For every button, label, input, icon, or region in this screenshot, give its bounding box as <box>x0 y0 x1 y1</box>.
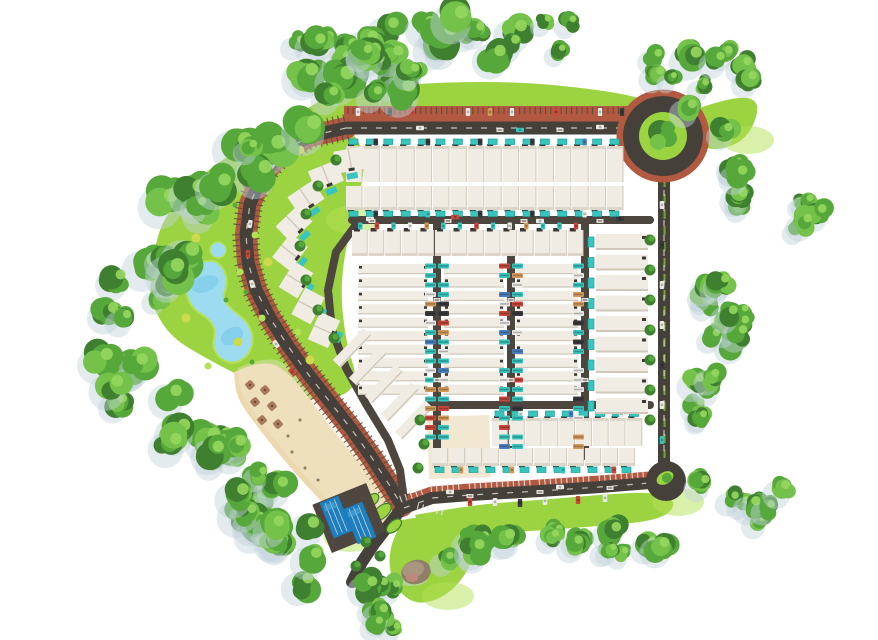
villa-unit <box>468 230 483 256</box>
villa-unit <box>607 146 623 182</box>
rowhouse-slab <box>444 318 504 328</box>
bush <box>237 269 244 276</box>
villa-unit <box>596 234 648 250</box>
plunge-pool <box>435 467 444 473</box>
rowhouse-slab <box>516 331 578 341</box>
plunge-pool <box>588 467 597 473</box>
villa-unit <box>485 230 500 256</box>
villa-unit <box>520 146 536 182</box>
plunge-pool <box>558 211 567 217</box>
villa-unit <box>485 186 501 210</box>
villa-unit <box>503 146 519 182</box>
bush <box>244 290 249 295</box>
beach-speck <box>317 479 320 482</box>
housing-row-a <box>346 139 623 183</box>
beach-speck <box>287 435 290 438</box>
plunge-pool <box>588 319 594 329</box>
plunge-pool <box>610 139 619 145</box>
plunge-pool <box>520 467 529 473</box>
plunge-pool <box>622 467 631 473</box>
villa-unit <box>518 230 533 256</box>
rowhouse-slab <box>516 291 578 301</box>
villa-unit <box>346 186 362 210</box>
villa-unit <box>610 418 625 446</box>
villa-unit <box>352 230 367 256</box>
plunge-pool <box>436 139 445 145</box>
plunge-pool <box>453 139 462 145</box>
plunge-pool <box>588 381 594 391</box>
villa-unit <box>555 146 571 182</box>
plunge-pool <box>610 211 619 217</box>
plunge-pool <box>384 139 393 145</box>
villa-unit <box>596 275 648 291</box>
villa-unit <box>535 230 550 256</box>
villa-unit <box>596 316 648 332</box>
villa-unit <box>509 418 524 446</box>
villa-unit <box>559 418 574 446</box>
villa-unit <box>537 186 553 210</box>
villa-unit <box>555 186 571 210</box>
plunge-pool <box>593 211 602 217</box>
rowhouse-slab <box>444 358 504 368</box>
villa-unit <box>593 418 608 446</box>
rowhouse-slab <box>444 344 504 354</box>
bush <box>259 315 266 322</box>
villa-unit <box>551 230 566 256</box>
plunge-pool <box>436 211 445 217</box>
villa-unit <box>596 378 648 394</box>
villa-unit <box>369 230 384 256</box>
housing-row-b <box>346 186 623 218</box>
plunge-pool <box>529 411 538 417</box>
plunge-pool <box>469 467 478 473</box>
housing-row-d2 <box>432 448 635 474</box>
rowhouse-slab <box>444 277 504 287</box>
villa-unit <box>398 146 414 182</box>
bush <box>264 258 273 267</box>
plunge-pool <box>506 139 515 145</box>
bush <box>250 360 255 365</box>
rowhouse-slab <box>516 385 578 395</box>
villa-unit <box>596 255 648 271</box>
villa-unit <box>607 186 623 210</box>
beach-speck <box>299 419 302 422</box>
plunge-pool <box>537 467 546 473</box>
plunge-pool <box>488 139 497 145</box>
rowhouse-slab <box>358 291 428 301</box>
beach-speck <box>304 467 307 470</box>
villa-unit <box>381 146 397 182</box>
villa-unit <box>537 146 553 182</box>
villa-unit <box>468 186 484 210</box>
rowhouse-slab <box>444 304 504 314</box>
plunge-pool <box>401 211 410 217</box>
villa-unit <box>572 146 588 182</box>
bush <box>252 232 259 239</box>
rowhouse-slab <box>516 277 578 287</box>
villa-unit <box>596 398 648 414</box>
villa-unit <box>568 230 583 256</box>
plunge-pool <box>488 211 497 217</box>
villa-unit <box>590 146 606 182</box>
villa-unit <box>492 418 507 446</box>
villa-unit <box>542 418 557 446</box>
villa-unit <box>433 146 449 182</box>
bush <box>295 329 302 336</box>
villa-unit <box>503 186 519 210</box>
plunge-pool <box>540 139 549 145</box>
beach-speck <box>291 451 294 454</box>
rowhouse-slab <box>516 318 578 328</box>
villa-unit <box>418 230 433 256</box>
rowhouse-slab <box>444 331 504 341</box>
villa-unit <box>485 146 501 182</box>
villa-unit <box>452 230 467 256</box>
plunge-pool <box>571 467 580 473</box>
plunge-pool <box>349 139 358 145</box>
rowhouse-slab <box>516 344 578 354</box>
villa-unit <box>402 230 417 256</box>
rowhouse-slab <box>444 385 504 395</box>
villa-unit <box>596 357 648 373</box>
site-plan-rendering <box>0 0 878 640</box>
rowhouse-slab <box>516 304 578 314</box>
housing-col-2 <box>444 264 504 395</box>
villa-unit <box>385 230 400 256</box>
plunge-pool <box>588 237 594 247</box>
villa-unit <box>590 186 606 210</box>
rowhouse-slab <box>516 371 578 381</box>
villa-unit <box>572 186 588 210</box>
plunge-pool <box>588 258 594 268</box>
villa-unit <box>433 186 449 210</box>
plunge-pool <box>486 467 495 473</box>
rowhouse-slab <box>516 264 578 274</box>
bush <box>192 234 201 243</box>
plunge-pool <box>588 360 594 370</box>
plunge-pool <box>558 139 567 145</box>
housing-col-3 <box>516 264 578 395</box>
villa-unit <box>468 146 484 182</box>
villa-unit <box>416 186 432 210</box>
plunge-pool <box>349 211 358 217</box>
housing-row-c <box>352 223 583 257</box>
bush <box>306 356 315 365</box>
plunge-pool <box>588 299 594 309</box>
rowhouse-slab <box>358 318 428 328</box>
villa-unit <box>381 186 397 210</box>
villa-unit <box>626 418 641 446</box>
villa-unit <box>501 230 516 256</box>
rowhouse-slab <box>516 358 578 368</box>
rowhouse-slab <box>358 304 428 314</box>
housing-col-east <box>588 234 648 414</box>
villa-unit <box>363 186 379 210</box>
villa-unit <box>526 418 541 446</box>
villa-unit <box>398 186 414 210</box>
rowhouse-slab <box>444 371 504 381</box>
rowhouse-slab <box>444 264 504 274</box>
villa-unit <box>450 146 466 182</box>
villa-unit <box>596 337 648 353</box>
plunge-pool <box>588 401 594 411</box>
bush <box>224 298 229 303</box>
small-pond <box>210 242 226 258</box>
rowhouse-slab <box>358 264 428 274</box>
bush <box>182 314 191 323</box>
plunge-pool <box>593 139 602 145</box>
villa-unit <box>576 418 591 446</box>
plunge-pool <box>540 211 549 217</box>
villa-unit <box>416 146 432 182</box>
bush <box>205 363 212 370</box>
rowhouse-slab <box>358 344 428 354</box>
bush <box>234 338 243 347</box>
plunge-pool <box>384 211 393 217</box>
bush <box>233 203 238 208</box>
plunge-pool <box>545 411 554 417</box>
villa-unit <box>520 186 536 210</box>
plunge-pool <box>401 139 410 145</box>
villa-unit <box>450 186 466 210</box>
plunge-pool <box>506 211 515 217</box>
villa-unit <box>596 296 648 312</box>
rowhouse-slab <box>358 277 428 287</box>
plunge-pool <box>588 340 594 350</box>
villa-unit <box>435 230 450 256</box>
plunge-pool <box>588 278 594 288</box>
rowhouse-slab <box>444 291 504 301</box>
masterplan-canvas <box>0 0 878 640</box>
